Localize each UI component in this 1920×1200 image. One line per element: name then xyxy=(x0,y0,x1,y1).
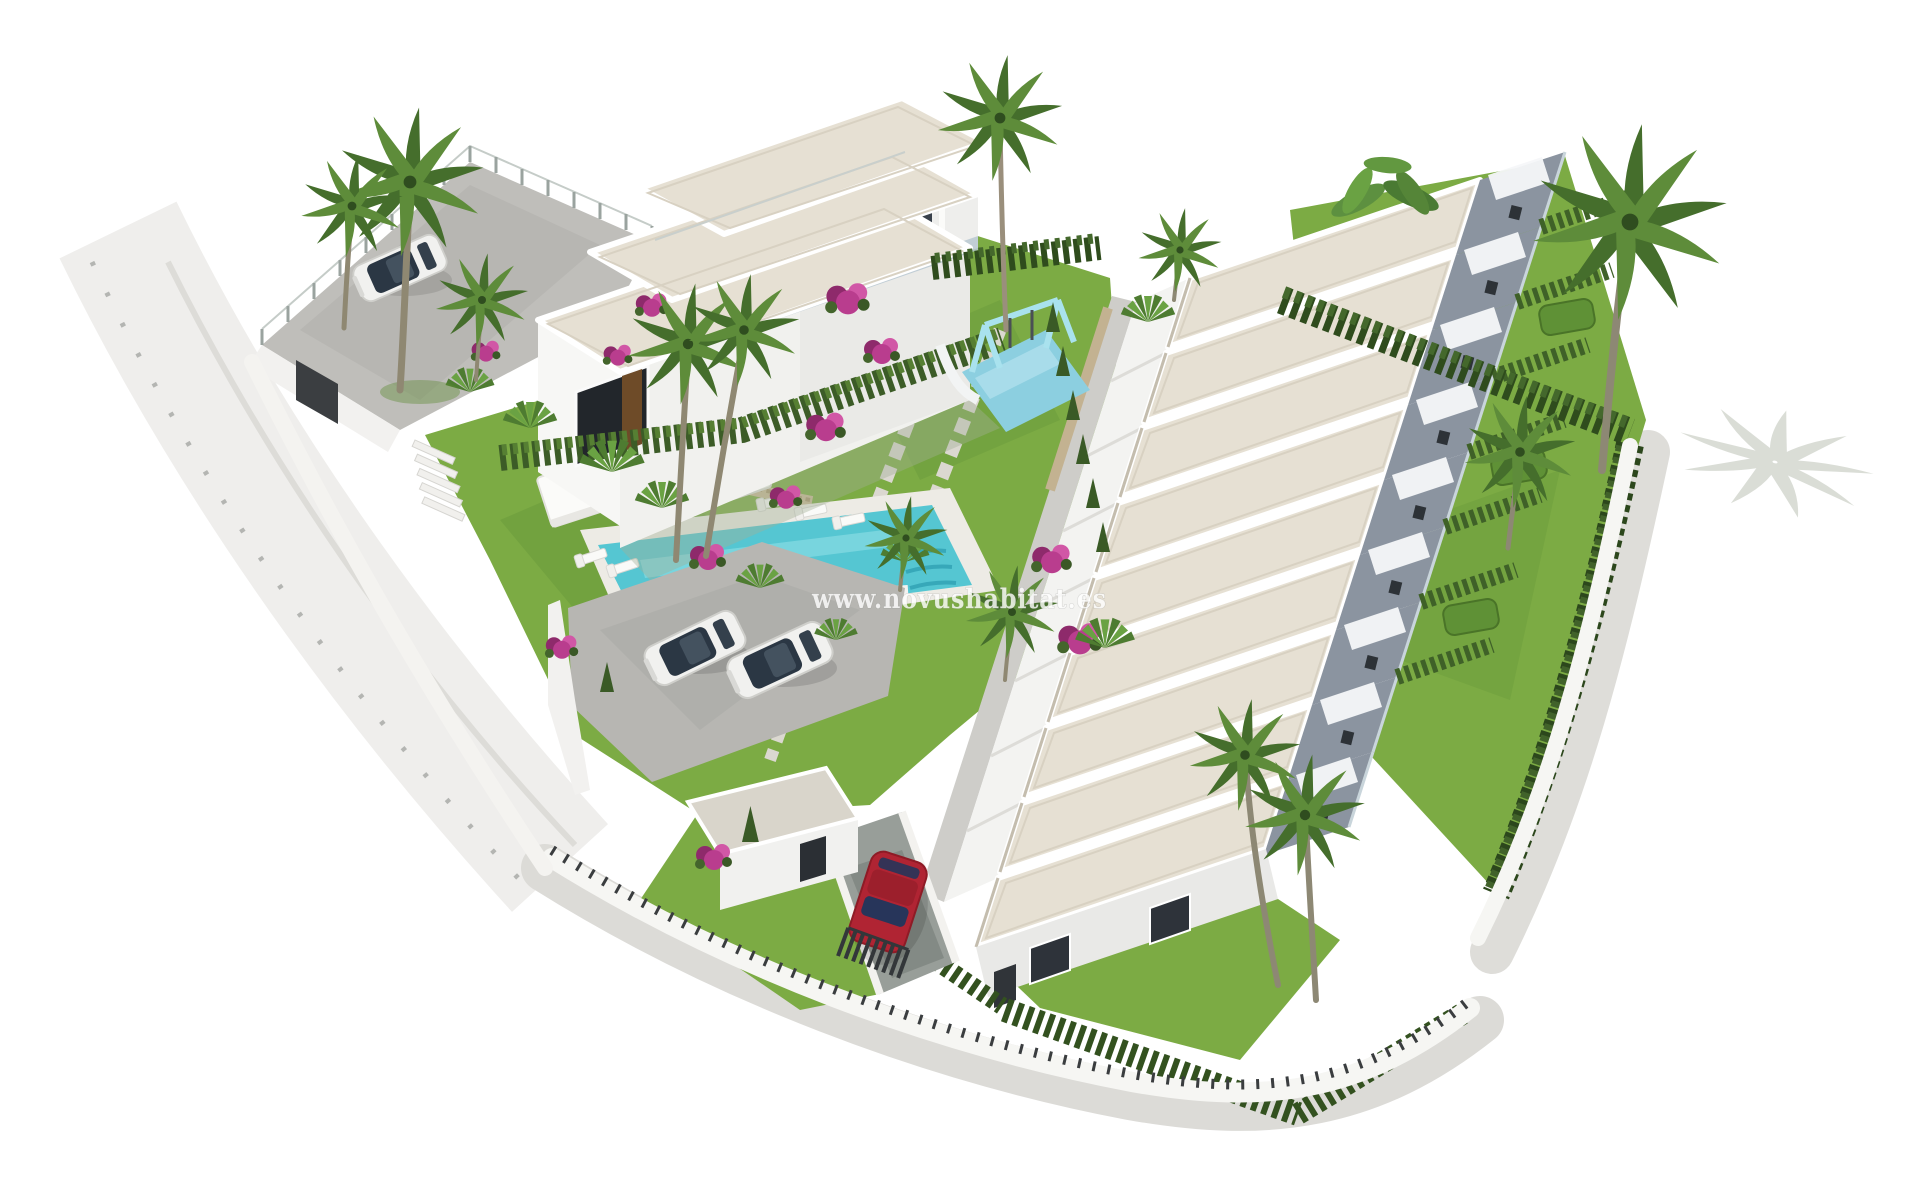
render-canvas: www.novushabitat.es xyxy=(0,0,1920,1200)
scene-svg: www.novushabitat.es xyxy=(0,0,1920,1200)
watermark-text: www.novushabitat.es xyxy=(811,584,1107,615)
